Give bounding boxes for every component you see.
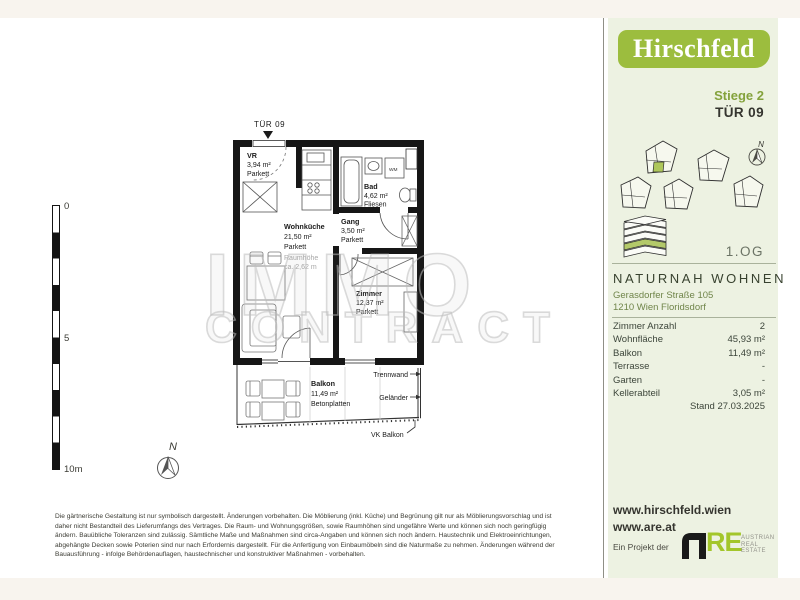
vr-name: VR — [247, 151, 258, 160]
vr-area: 3,94 m² — [247, 162, 271, 169]
highlighted-unit — [653, 162, 664, 172]
row-label: Garten — [613, 374, 642, 387]
scale-bar — [52, 205, 60, 470]
washing-machine-label: WM — [389, 167, 398, 173]
building-floors-icon — [624, 216, 666, 257]
balkon-floor: Betonplatten — [311, 401, 350, 408]
hirschfeld-logo: Hirschfeld — [618, 30, 770, 68]
row-label: Wohnfläche — [613, 333, 663, 346]
floorplan-page: { "watermark": { "line1": "IMMO", "line2… — [0, 0, 800, 600]
sidebar-rule-top — [612, 263, 776, 264]
table-row: Terrasse- — [613, 360, 765, 373]
shaft — [406, 149, 417, 169]
room-height-note-1: Raumhöhe — [284, 255, 318, 262]
disclaimer-line: abgehängte Decken sowie Poterien sind nu… — [55, 541, 615, 551]
scale-label-0: 0 — [64, 201, 69, 212]
vk-balkon-leader — [407, 420, 415, 433]
plan-compass-icon: N — [148, 438, 190, 484]
sidebar-divider-line — [603, 18, 604, 578]
scale-label-5: 5 — [64, 333, 69, 344]
table-row: Wohnfläche45,93 m² — [613, 333, 765, 346]
site-plan-buildings — [621, 141, 763, 209]
bad-floor: Fliesen — [364, 202, 387, 209]
zimmer-floor: Parkett — [356, 309, 378, 316]
are-logo-icon — [682, 533, 706, 559]
bad-area: 4,62 m² — [364, 193, 388, 200]
project-name: NATURNAH WOHNEN — [613, 271, 773, 286]
disclaimer-line: daher nicht Bestandteil des Lieferumfang… — [55, 522, 615, 532]
row-value: 11,49 m² — [728, 347, 765, 360]
row-label: Zimmer Anzahl — [613, 320, 676, 333]
row-label: Balkon — [613, 347, 642, 360]
table-row: Balkon11,49 m² — [613, 347, 765, 360]
floor-level-label: 1.OG — [690, 244, 764, 259]
hirschfeld-logo-text: Hirschfeld — [633, 34, 755, 64]
row-value: - — [762, 360, 765, 373]
entrance-door-label: TÜR 09 — [254, 120, 285, 129]
gang-floor: Parkett — [341, 237, 363, 244]
kitchen-counter — [302, 150, 331, 210]
date-stamp: Stand 27.03.2025 — [613, 401, 765, 412]
staircase-label: Stiege 2 — [613, 88, 764, 103]
are-word-estate: ESTATE — [741, 548, 775, 555]
row-value: 3,05 m² — [733, 387, 765, 400]
row-label: Kellerabteil — [613, 387, 660, 400]
are-logo-words: AUSTRIAN REAL ESTATE — [741, 535, 775, 555]
table-row: Zimmer Anzahl2 — [613, 320, 765, 333]
website-link-hirschfeld[interactable]: www.hirschfeld.wien — [613, 503, 731, 517]
bad-name: Bad — [364, 182, 378, 191]
wohnkueche-name: Wohnküche — [284, 222, 325, 231]
plan-compass-n: N — [169, 441, 177, 453]
project-by-label: Ein Projekt der — [613, 542, 669, 552]
balkon-name: Balkon — [311, 379, 335, 388]
sidebar-rule-table — [612, 317, 776, 318]
table-row: Kellerabteil3,05 m² — [613, 387, 765, 400]
are-logo-re: RE — [706, 527, 742, 558]
table-row: Garten- — [613, 374, 765, 387]
gang-area: 3,50 m² — [341, 228, 365, 235]
zimmer-name: Zimmer — [356, 289, 382, 298]
entrance-door-leaf — [253, 141, 285, 147]
zimmer-area: 12,37 m² — [356, 300, 384, 307]
address-line-1: Gerasdorfer Straße 105 — [613, 290, 713, 301]
vr-wardrobe — [243, 182, 277, 212]
row-label: Terrasse — [613, 360, 649, 373]
wohnkueche-area: 21,50 m² — [284, 234, 312, 241]
room-height-note-2: ca. 2,62 m — [284, 264, 317, 271]
balkon-area: 11,49 m² — [311, 391, 339, 398]
gelaender-label: Geländer — [379, 395, 408, 402]
unit-door-label: TÜR 09 — [613, 105, 764, 120]
are-word-austrian: AUSTRIAN — [741, 535, 775, 542]
plan-annotations: Trennwand Geländer VK Balkon — [371, 372, 421, 439]
disclaimer-text: Die gärtnerische Gestaltung ist nur symb… — [55, 512, 615, 560]
website-link-are[interactable]: www.are.at — [613, 520, 676, 534]
balcony-furniture — [246, 380, 300, 420]
unit-details-table: Zimmer Anzahl2 Wohnfläche45,93 m² Balkon… — [613, 320, 765, 400]
row-value: 45,93 m² — [728, 333, 766, 346]
wohnkueche-floor: Parkett — [284, 244, 306, 251]
are-word-real: REAL — [741, 542, 775, 549]
sidebar-compass-n: N — [758, 140, 764, 149]
floor-plan-svg: TÜR 09 — [225, 115, 430, 445]
gang-name: Gang — [341, 217, 359, 226]
trennwand-label: Trennwand — [373, 372, 408, 379]
disclaimer-line: Die gärtnerische Gestaltung ist nur symb… — [55, 512, 615, 522]
sidebar-compass-icon: N — [749, 140, 765, 165]
disclaimer-line: ändern. Bauübliche Toleranzen sind zuläs… — [55, 531, 615, 541]
address-line-2: 1210 Wien Floridsdorf — [613, 302, 706, 313]
scale-label-10m: 10m — [64, 464, 82, 475]
disclaimer-line: Bauausführung - infolge Behördenauflagen… — [55, 550, 615, 560]
row-value: 2 — [760, 320, 765, 333]
row-value: - — [762, 374, 765, 387]
entrance-arrow-icon — [263, 131, 273, 139]
vr-floor: Parkett — [247, 171, 269, 178]
vk-balkon-label: VK Balkon — [371, 432, 404, 439]
